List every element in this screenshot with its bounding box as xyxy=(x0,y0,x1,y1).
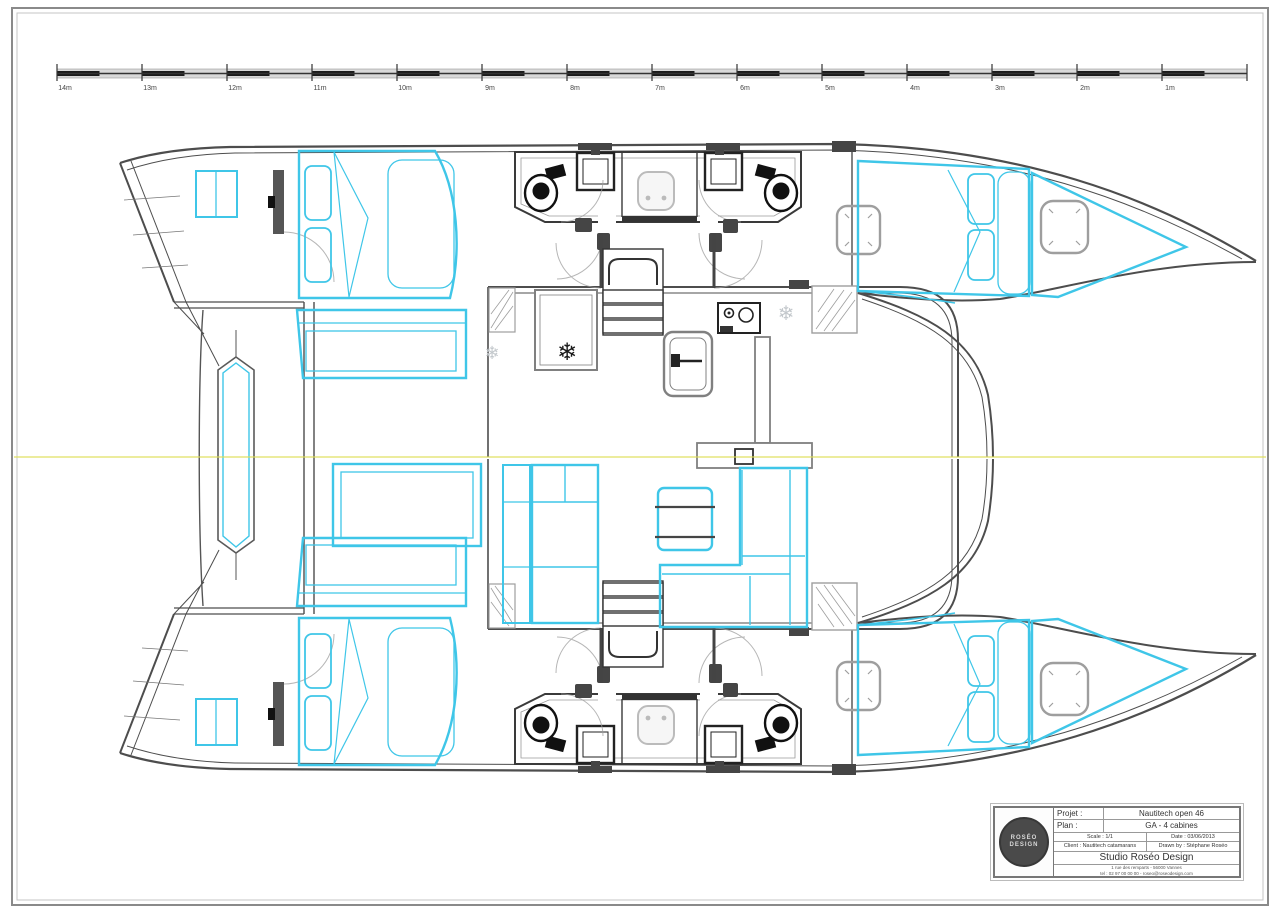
scale-label: 4m xyxy=(910,85,920,92)
project-row: Projet : Nautitech open 46 xyxy=(1054,808,1239,820)
sink-icon xyxy=(705,149,742,190)
scale-label: 8m xyxy=(570,85,580,92)
title-block: ROSÉO DESIGN Projet : Nautitech open 46 … xyxy=(993,806,1241,878)
plan-label: Plan : xyxy=(1054,820,1104,831)
table-shadow-lines xyxy=(655,507,715,537)
sink-icon xyxy=(577,149,614,190)
saloon-furniture xyxy=(333,464,807,627)
bed-pillow xyxy=(968,230,994,280)
saloon-sofa xyxy=(660,468,807,627)
stern-hatch xyxy=(196,171,237,217)
galley-stove-icon xyxy=(718,303,760,333)
aft-beam xyxy=(199,310,254,606)
scale-label: 3m xyxy=(995,85,1005,92)
scale-label: 9m xyxy=(485,85,495,92)
companionway-stairs xyxy=(603,249,663,335)
aft-cabin-bench xyxy=(297,310,466,378)
logo-text: DESIGN xyxy=(1009,842,1038,849)
cockpit-bench xyxy=(333,464,481,546)
saloon-table xyxy=(658,488,712,550)
drawing-sheet: 14m 13m 12m 11m 10m 9m 8m 7m 6m 5m 4m 3m… xyxy=(0,0,1280,913)
snowflake-icon: ❄ xyxy=(557,339,577,366)
scale-label: 2m xyxy=(1080,85,1090,92)
snowflake-icon: ❄ xyxy=(484,343,499,363)
door-opening xyxy=(598,214,616,224)
transom-steps xyxy=(120,161,314,458)
client-drawn-row: Client : Nautitech catamarans Drawn by :… xyxy=(1054,842,1239,851)
bed-pillow xyxy=(305,228,331,282)
studio-address: 1 rue des remparts - 56000 Vannes xyxy=(1111,865,1181,870)
scale-labels: 14m 13m 12m 11m 10m 9m 8m 7m 6m 5m 4m 3m… xyxy=(58,85,1175,92)
studio-logo: ROSÉO DESIGN xyxy=(999,817,1049,867)
deck-hatch-icon xyxy=(837,201,1088,254)
scale-label: 14m xyxy=(58,85,72,92)
scale-label: 6m xyxy=(740,85,750,92)
cabin-door xyxy=(268,170,284,234)
contact-row: tel : 02 97 00 00 00 - roseo@roseodesign… xyxy=(1054,870,1239,876)
scale-label: 11m xyxy=(313,85,326,92)
studio-name-row: Studio Roséo Design xyxy=(1054,852,1239,865)
studio-name: Studio Roséo Design xyxy=(1100,852,1194,863)
scale-value: Scale : 1/1 xyxy=(1054,833,1146,841)
scale-label: 13m xyxy=(143,85,157,92)
scale-label: 10m xyxy=(398,85,412,92)
hull-top xyxy=(120,141,1256,458)
logo-text: ROSÉO xyxy=(1011,835,1038,842)
drawn-by-value: Drawn by : Stéphane Roséo xyxy=(1146,842,1239,850)
galley-counter xyxy=(755,337,770,443)
studio-contact: tel : 02 97 00 00 00 - roseo@roseodesign… xyxy=(1100,871,1193,876)
hull-bottom xyxy=(120,458,1256,775)
project-value: Nautitech open 46 xyxy=(1104,809,1239,818)
plan-row: Plan : GA - 4 cabines xyxy=(1054,820,1239,832)
date-value: Date : 03/06/2013 xyxy=(1146,833,1239,841)
bed-pillow xyxy=(305,166,331,220)
scale-label: 7m xyxy=(655,85,665,92)
door-opening xyxy=(700,214,718,224)
snowflake-icon: ❄ xyxy=(778,303,795,325)
scale-label: 5m xyxy=(825,85,835,92)
heads-compartment xyxy=(284,149,801,288)
nav-seat-unit xyxy=(532,465,598,623)
scale-label: 12m xyxy=(228,85,242,92)
ga-plan-svg: 14m 13m 12m 11m 10m 9m 8m 7m 6m 5m 4m 3m… xyxy=(0,0,1280,913)
shower-basin xyxy=(638,172,674,210)
landing-wall xyxy=(622,216,697,222)
scale-date-row: Scale : 1/1 Date : 03/06/2013 xyxy=(1054,833,1239,842)
forward-cabin-berth xyxy=(858,161,1030,296)
logo-cell: ROSÉO DESIGN xyxy=(995,808,1054,876)
project-label: Projet : xyxy=(1054,808,1104,819)
plan-value: GA - 4 cabines xyxy=(1104,821,1239,830)
client-value: Client : Nautitech catamarans xyxy=(1054,842,1146,850)
aft-cabin-bed xyxy=(299,151,457,298)
scale-label: 1m xyxy=(1165,85,1175,92)
galley-island xyxy=(697,443,812,468)
scale-bar: 14m 13m 12m 11m 10m 9m 8m 7m 6m 5m 4m 3m… xyxy=(57,64,1247,92)
galley xyxy=(535,290,812,468)
